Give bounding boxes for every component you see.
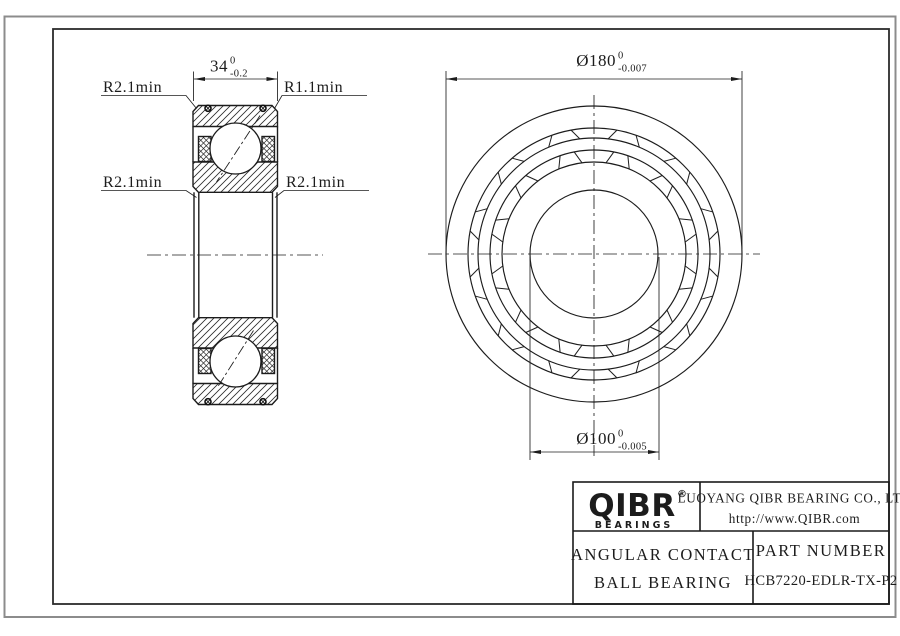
cage-pocket-edge — [664, 158, 676, 161]
cage-pocket-edge — [608, 369, 617, 378]
radius-label-top-right: R1.1min — [284, 79, 343, 96]
cage-pocket-edge — [606, 345, 614, 356]
cage-pocket-edge — [475, 296, 487, 299]
company-name: LUOYANG QIBR BEARING CO., LTD — [678, 491, 900, 506]
drawing-sheet: 34 0 -0.2 R2.1min R1.1min R2.1min R2.1mi… — [0, 0, 900, 636]
cage-pocket-edge — [496, 219, 509, 220]
cage-pocket-edge — [679, 288, 692, 289]
cage-pocket-edge — [701, 209, 713, 212]
cage-pocket-edge — [492, 234, 503, 242]
cage-pocket-edge — [608, 130, 617, 139]
cage-pocket-edge — [709, 268, 718, 277]
cage-pocket-edge — [470, 231, 479, 240]
radius-label-top-left: R2.1min — [103, 79, 162, 96]
cage-pocket-edge — [526, 327, 538, 333]
drawing-canvas: 34 0 -0.2 R2.1min R1.1min R2.1min R2.1mi… — [0, 0, 900, 636]
part-number-label: PART NUMBER — [756, 541, 887, 560]
brand-logo: QIBR ® BEARINGS — [588, 488, 687, 531]
leader-line — [275, 96, 368, 109]
cage-pocket-edge — [650, 176, 662, 182]
outer-diameter-value: Ø180 — [576, 51, 616, 70]
cage-pocket-edge — [571, 130, 580, 139]
sheet-borders — [5, 17, 896, 618]
cage-pocket-edge — [512, 158, 524, 161]
cage-pocket-edge — [498, 172, 501, 184]
arrowhead-right — [731, 77, 742, 81]
cage-pocket-edge — [628, 339, 629, 352]
width-dim-tol-lower: -0.2 — [230, 69, 248, 80]
leader-line — [101, 191, 197, 198]
cage-pocket-edge — [685, 266, 696, 274]
cage-pocket-edge — [549, 135, 552, 147]
logo-text: QIBR — [588, 488, 675, 524]
bearing-section-top-half — [193, 105, 278, 192]
cage-pocket-edge — [636, 361, 639, 373]
cage-section-top-left — [199, 137, 212, 162]
cage-pocket-edge — [667, 186, 673, 198]
cage-pocket-edge — [470, 268, 479, 277]
cage-pocket-edge — [571, 369, 580, 378]
width-dimension: 34 0 -0.2 — [194, 56, 278, 102]
radius-label-mid-left: R2.1min — [103, 174, 162, 191]
cage-pocket-edge — [606, 152, 614, 163]
product-type-line1: ANGULAR CONTACT — [571, 545, 755, 564]
cage-pocket-edge — [475, 209, 487, 212]
ball-bottom — [210, 336, 261, 387]
company-website: http://www.QIBR.com — [729, 511, 861, 526]
leader-line — [101, 96, 197, 109]
cage-pocket-edge — [701, 296, 713, 299]
cage-pocket-edge — [559, 156, 560, 169]
ball-top — [210, 123, 261, 174]
part-number-value: HCB7220-EDLR-TX-P2 — [745, 573, 898, 589]
bore-diameter-tol-upper: 0 — [618, 429, 624, 440]
bearing-section-bottom-half — [193, 318, 278, 405]
section-view: 34 0 -0.2 R2.1min R1.1min R2.1min R2.1mi… — [101, 56, 369, 405]
cage-pocket-edge — [709, 231, 718, 240]
width-dim-tol-upper: 0 — [230, 56, 236, 67]
cage-pocket-edge — [492, 266, 503, 274]
cage-pocket-edge — [687, 172, 690, 184]
arrowhead-right — [648, 450, 659, 454]
cage-pocket-edge — [559, 339, 560, 352]
seal-mark — [205, 105, 211, 111]
cage-pocket-edge — [496, 288, 509, 289]
cage-section-bottom-left — [199, 349, 212, 374]
cage-pocket-edge — [574, 152, 582, 163]
radius-label-mid-right: R2.1min — [286, 174, 345, 191]
width-dim-value: 34 — [210, 57, 228, 76]
outer-diameter-tol-lower: -0.007 — [618, 64, 647, 75]
cage-section-top-right — [262, 137, 275, 162]
cage-section-bottom-right — [262, 349, 275, 374]
cage-pocket-edge — [679, 219, 692, 220]
cage-pocket-edge — [667, 310, 673, 322]
product-type-line2: BALL BEARING — [594, 573, 732, 592]
outer-diameter-tol-upper: 0 — [618, 51, 624, 62]
arrowhead-left — [446, 77, 457, 81]
seal-mark — [205, 399, 211, 405]
seal-mark — [260, 399, 266, 405]
cage-pocket-edge — [650, 327, 662, 333]
arrowhead-right — [267, 77, 278, 81]
title-block: QIBR ® BEARINGS LUOYANG QIBR BEARING CO.… — [571, 482, 900, 604]
arrowhead-left — [194, 77, 205, 81]
logo-subtext: BEARINGS — [595, 520, 674, 531]
cage-pocket-edge — [687, 324, 690, 336]
bore-diameter-value: Ø100 — [576, 429, 616, 448]
cage-pocket-edge — [526, 176, 538, 182]
cage-pocket-edge — [636, 135, 639, 147]
arrowhead-left — [530, 450, 541, 454]
cage-pocket-edge — [664, 347, 676, 350]
cage-pocket-edge — [512, 347, 524, 350]
cage-pocket-edge — [498, 324, 501, 336]
cage-pocket-edge — [628, 156, 629, 169]
cage-pocket-edge — [516, 186, 522, 198]
cage-pocket-edge — [549, 361, 552, 373]
seal-mark — [260, 105, 266, 111]
bore-diameter-tol-lower: -0.005 — [618, 442, 647, 453]
cage-pocket-edge — [685, 234, 696, 242]
front-view: Ø180 0 -0.007 Ø100 0 -0.005 — [428, 51, 760, 461]
outer-border — [5, 17, 896, 618]
leader-line — [275, 191, 369, 198]
cage-pocket-edge — [516, 310, 522, 322]
cage-pocket-edge — [574, 345, 582, 356]
